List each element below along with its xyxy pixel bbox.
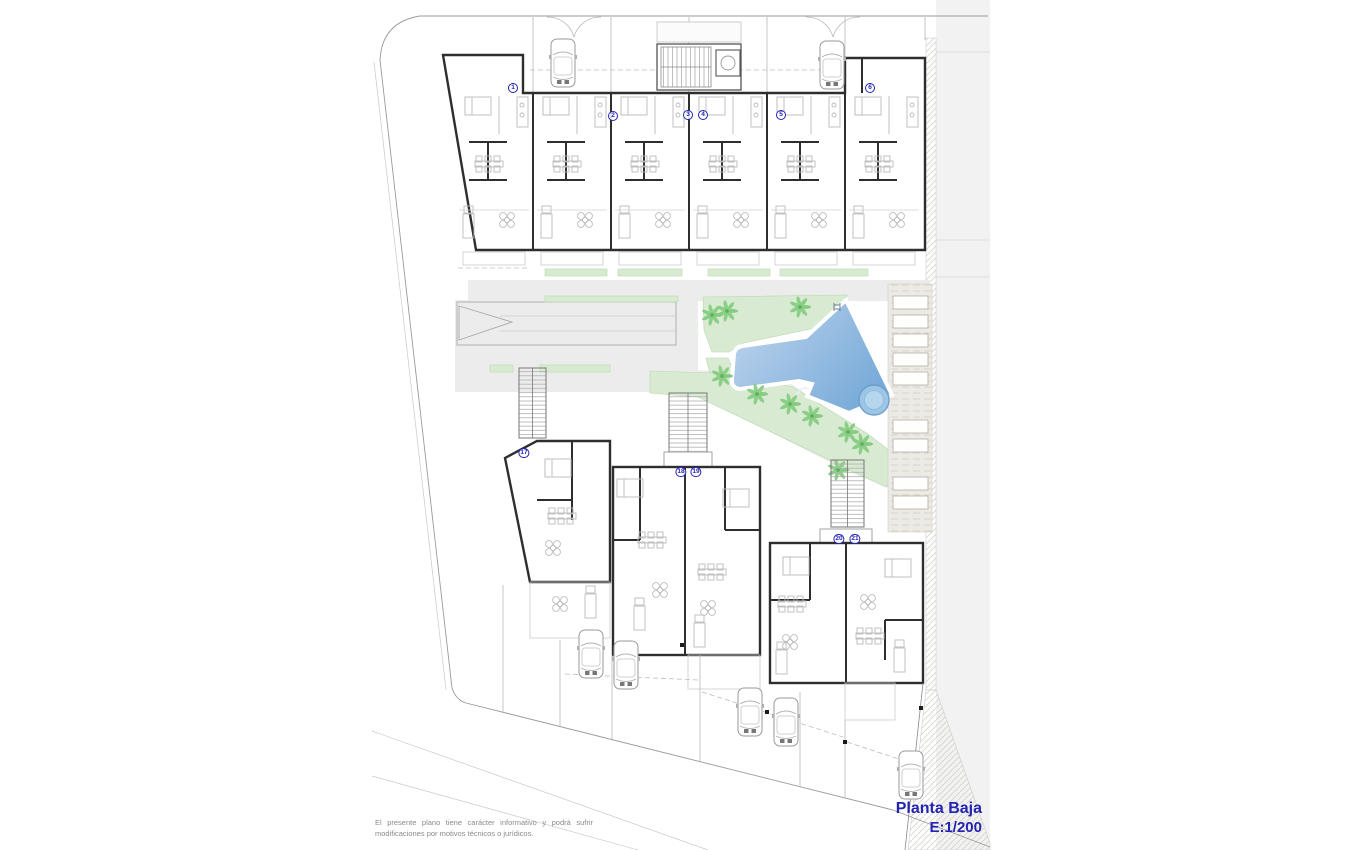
stair-lift-core — [657, 22, 741, 90]
car-icon — [549, 39, 577, 87]
car-icon — [612, 641, 640, 689]
unit-badge-20: 20 — [833, 534, 844, 544]
furniture-round — [553, 597, 568, 612]
gate-post — [680, 643, 684, 647]
car-icon — [818, 41, 846, 89]
unit-badge-21: 21 — [849, 534, 860, 544]
car-icon — [736, 688, 764, 736]
parking-space — [893, 353, 928, 366]
gate-post — [765, 710, 769, 714]
scale-label: E:1/200 — [700, 820, 982, 836]
parking-space — [893, 477, 928, 490]
parking-space — [893, 334, 928, 347]
parking-space — [893, 315, 928, 328]
gate-post — [919, 706, 923, 710]
unit-badge-19: 19 — [690, 467, 701, 477]
parking-space — [893, 372, 928, 385]
parking-space — [893, 420, 928, 433]
parking-space — [893, 439, 928, 452]
elevator — [716, 50, 740, 76]
unit-badge-5: 5 — [776, 110, 786, 120]
furniture-sofa — [585, 586, 596, 618]
disclaimer-note: El presente plano tiene carácter informa… — [375, 817, 593, 840]
unit-badge-1: 1 — [508, 83, 518, 93]
gate-post — [843, 740, 847, 744]
car-icon — [577, 630, 605, 678]
parking-space — [893, 496, 928, 509]
parking-court — [888, 284, 932, 532]
unit-badge-4: 4 — [698, 110, 708, 120]
site-plan-drawing — [0, 0, 1360, 850]
unit-badge-18: 18 — [675, 467, 686, 477]
unit-badge-2: 2 — [608, 111, 618, 121]
car-icon — [897, 751, 925, 799]
spa-jacuzzi — [859, 385, 889, 415]
floorplan-canvas: 1234561718192021 El presente plano tiene… — [0, 0, 1360, 850]
building-unit17 — [505, 368, 610, 638]
unit-badge-6: 6 — [865, 83, 875, 93]
parking-space — [893, 296, 928, 309]
floor-label: Planta Baja — [700, 801, 982, 818]
unit-badge-3: 3 — [683, 110, 693, 120]
unit-badge-17: 17 — [518, 448, 529, 458]
car-icon — [772, 698, 800, 746]
plan-title-block: Planta Baja E:1/200 — [700, 801, 982, 836]
